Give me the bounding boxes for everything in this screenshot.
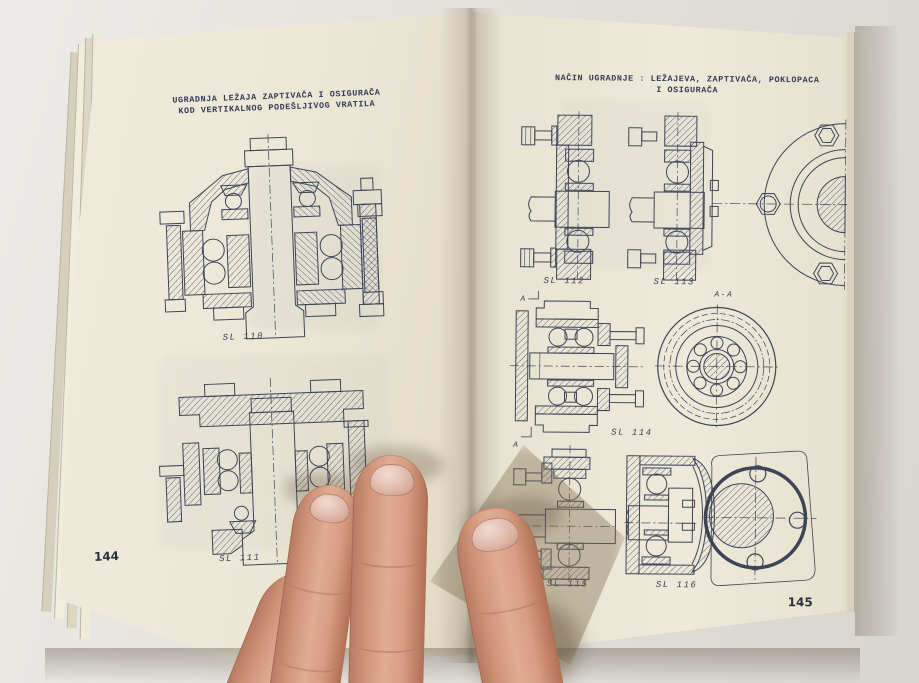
right-page-number: 145 [788,595,813,609]
hand-cast-shadow-lower [470,600,580,683]
section-cut-marker-bottom: A [512,441,518,450]
figure-sl116-drawing [624,456,715,575]
figure-flange-face-view-drawing [703,450,817,586]
figure-label-sl112: SL 112 [543,276,584,286]
figure-aa-section-view-drawing [654,304,779,429]
right-wall-shadow [855,26,897,636]
right-page-edge [847,32,855,612]
figure-label-sl113: SL 113 [653,277,694,287]
section-view-label-aa: A-A [714,290,733,299]
photo-of-open-book: UGRADNJA LEŽAJA ZAPTIVAČA I OSIGURAČA KO… [0,0,919,683]
figure-sl112-drawing [521,111,610,282]
figure-flange-half-view-drawing [711,118,847,289]
right-page-title-line2: I OSIGURAČA [522,84,852,97]
section-cut-marker-top: A [519,295,525,304]
figure-label-sl114: SL 114 [611,428,652,438]
figure-label-sl116: SL 116 [656,580,697,590]
figure-sl113-drawing [628,112,719,283]
bottom-book-shadow [45,648,860,683]
